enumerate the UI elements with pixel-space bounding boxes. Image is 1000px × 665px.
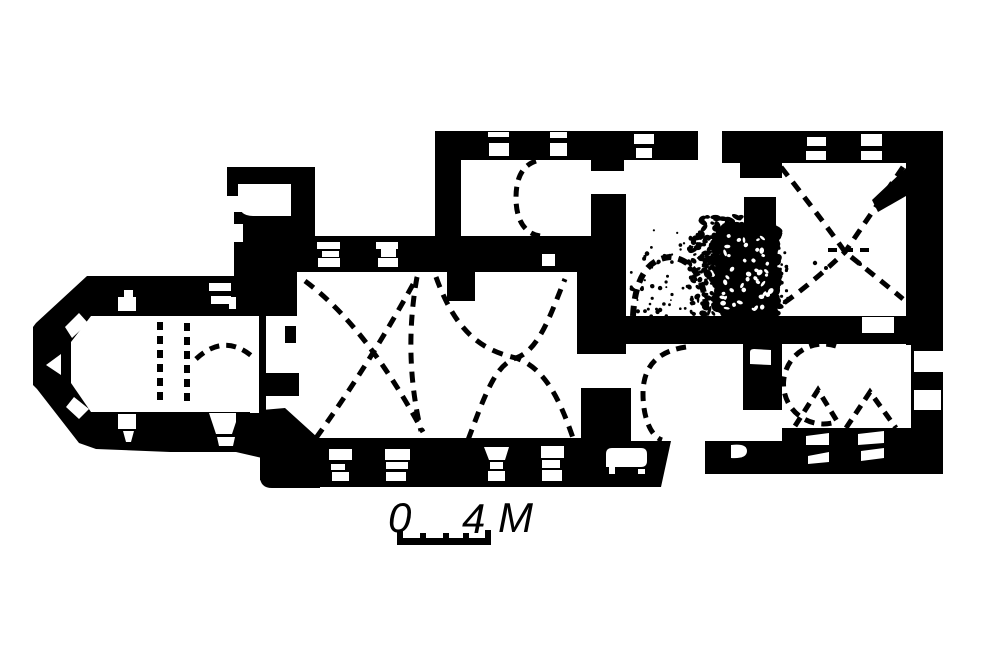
svg-text:0: 0 [388,494,412,541]
svg-text:4: 4 [462,495,485,542]
svg-text:M: M [498,494,533,541]
